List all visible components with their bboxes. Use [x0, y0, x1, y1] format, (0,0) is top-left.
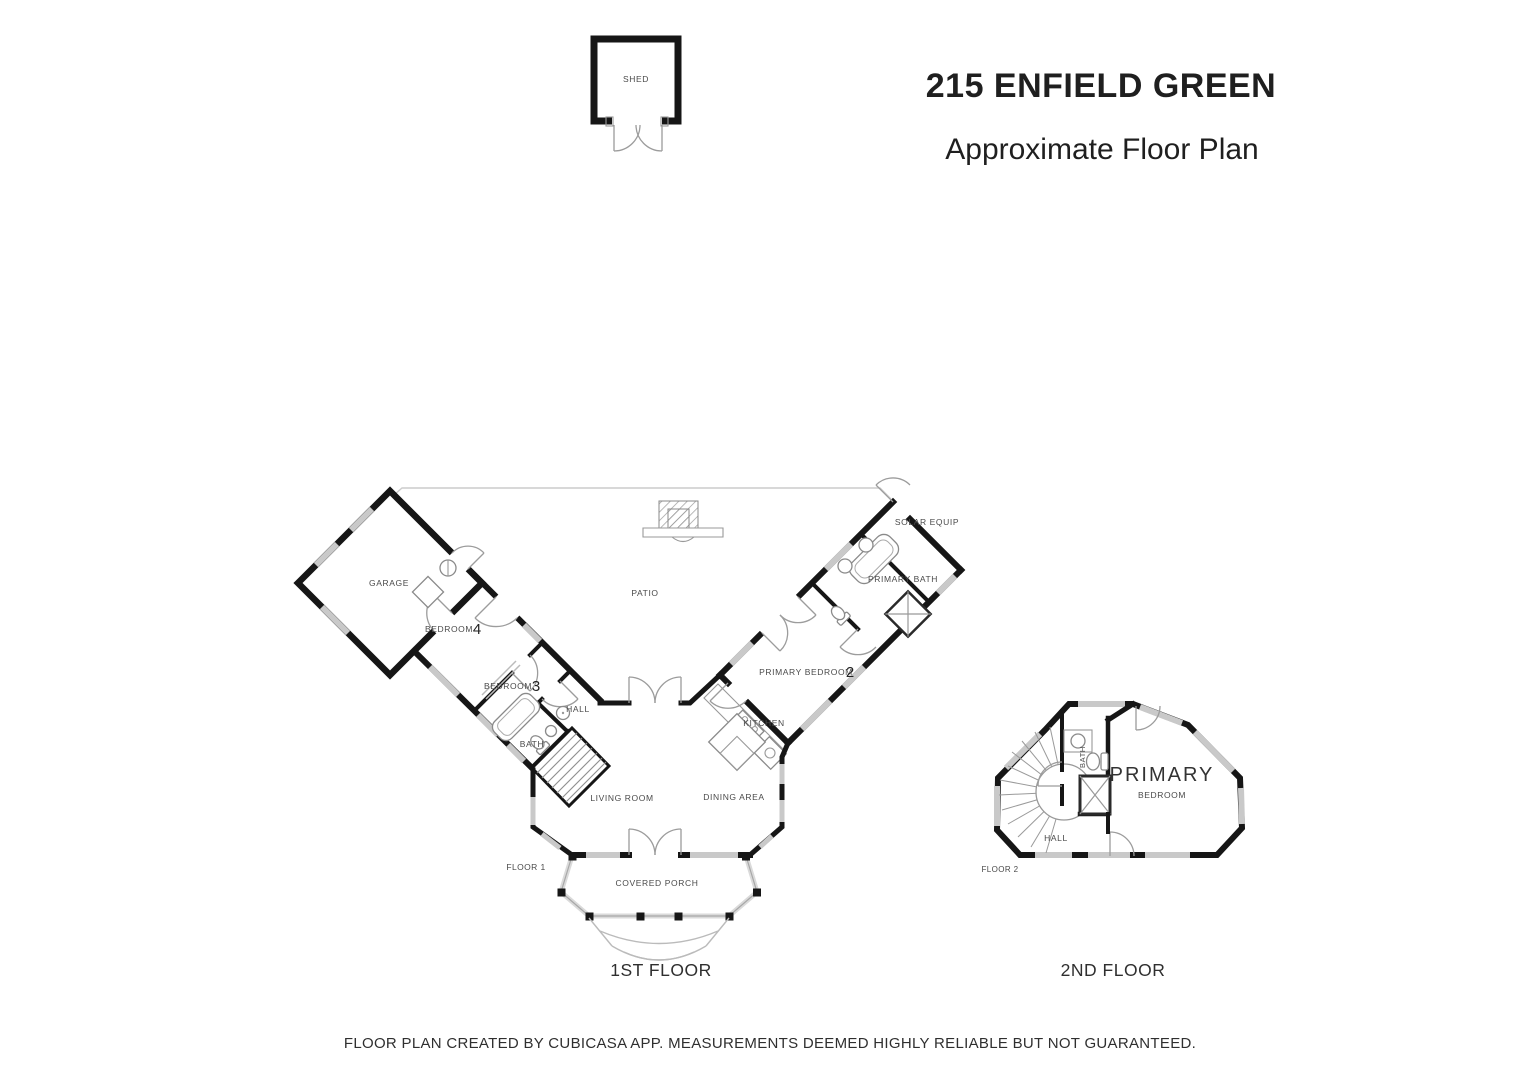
patio-counter-curve — [672, 537, 694, 542]
primary-bedroom-label: PRIMARY BEDROOM — [759, 667, 853, 677]
sink-primary — [838, 559, 852, 573]
bath-f1-label: BATH — [520, 739, 544, 749]
patio-counter — [643, 528, 723, 537]
bedroom4-number: 4 — [473, 621, 481, 638]
bedroom3-label: BEDROOM — [484, 681, 532, 691]
page-subtitle: Approximate Floor Plan — [945, 133, 1258, 166]
hall-f2-label: HALL — [1044, 833, 1068, 843]
floor1-caption: 1ST FLOOR — [610, 960, 711, 980]
sink-primary — [859, 538, 873, 552]
porch-steps — [589, 918, 729, 960]
floor1-tag: FLOOR 1 — [506, 862, 545, 872]
shed-label: SHED — [623, 74, 649, 84]
patio-grill-inner — [668, 509, 689, 528]
second-floor-plan: BATH PRIMARY BEDROOM HALL FLOOR 2 2ND FL… — [981, 704, 1242, 980]
primary-bath-label: PRIMARY BATH — [868, 574, 938, 584]
primary-f2-label: PRIMARY — [1110, 764, 1215, 786]
kitchen-label: KITCHEN — [743, 718, 785, 728]
bath-f2-label: BATH — [1078, 746, 1087, 768]
primary-bedroom-number: 2 — [846, 664, 854, 681]
floor-plan-canvas: 215 ENFIELD GREEN Approximate Floor Plan… — [0, 0, 1528, 1080]
floor2-tag: FLOOR 2 — [981, 865, 1018, 874]
shed: SHED — [594, 39, 678, 151]
covered-porch: COVERED PORCH — [558, 853, 762, 961]
patio-boundary — [394, 488, 891, 499]
bedroom4-closet — [412, 576, 443, 607]
patio-label: PATIO — [631, 588, 658, 598]
solar-equip-label: SOLAR EQUIP — [895, 517, 959, 527]
floor2-caption: 2ND FLOOR — [1061, 960, 1166, 980]
bedroom4-label: BEDROOM — [425, 624, 473, 634]
garage-label: GARAGE — [369, 578, 409, 588]
toilet-primary — [828, 603, 851, 626]
porch-double-door — [629, 829, 681, 855]
bedroom3-number: 3 — [532, 678, 540, 695]
sink-f1 — [546, 726, 557, 737]
sink-f2 — [1071, 734, 1085, 748]
header: 215 ENFIELD GREEN Approximate Floor Plan — [926, 67, 1276, 166]
disclaimer: FLOOR PLAN CREATED BY CUBICASA APP. MEAS… — [344, 1035, 1196, 1052]
closet-sliding-doors — [482, 661, 520, 699]
dining-area-label: DINING AREA — [703, 792, 764, 802]
shed-double-door — [614, 125, 662, 151]
top-wall — [600, 675, 720, 703]
first-floor-plan: PATIO — [298, 478, 961, 980]
living-room-label: LIVING ROOM — [590, 793, 653, 803]
page-title: 215 ENFIELD GREEN — [926, 67, 1276, 105]
left-wing: GARAGE BEDROOM 4 BEDROOM 3 HALL BATH — [298, 491, 609, 806]
toilet-f2 — [1087, 753, 1109, 770]
hall-f1-label: HALL — [566, 704, 590, 714]
hall-fixture-dot — [562, 712, 564, 714]
primary-f2-sub-label: BEDROOM — [1138, 790, 1186, 800]
patio-double-door — [629, 677, 681, 703]
right-wing: PRIMARY BEDROOM 2 PRIMARY BATH SOLAR EQU… — [704, 478, 961, 770]
covered-porch-label: COVERED PORCH — [616, 878, 699, 888]
closet-f2 — [1080, 776, 1110, 814]
